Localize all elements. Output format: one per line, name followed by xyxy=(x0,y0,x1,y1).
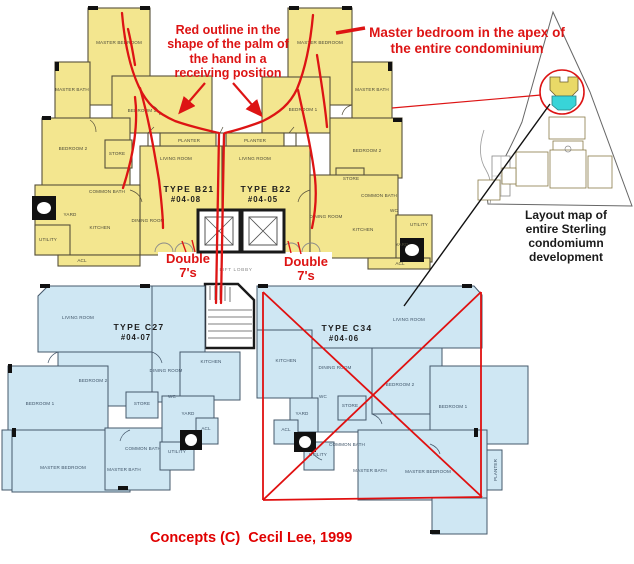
room-label: MASTER BEDROOM xyxy=(405,469,451,474)
map-highlight-building-upper xyxy=(550,77,578,96)
room-label: COMMON BATH xyxy=(329,442,365,447)
room-label: UTILITY xyxy=(39,237,57,242)
unit-type-c27: TYPE C27 xyxy=(114,322,165,332)
map-pointer-red-line xyxy=(392,95,541,108)
palm-annotation-text: Red outline in the shape of the palm of … xyxy=(163,23,293,81)
room-label: BEDROOM 2 xyxy=(353,148,382,153)
room-label: MASTER BATH xyxy=(355,87,389,92)
copyright-text: Concepts (C) Cecil Lee, 1999 xyxy=(150,530,352,546)
room-label: BEDROOM 1 xyxy=(128,108,157,113)
c27-bedroom1-block xyxy=(8,366,108,432)
room-label: DINING ROOM xyxy=(150,368,183,373)
c34-master-extension-block xyxy=(432,498,487,534)
unit-type-c34: TYPE C34 xyxy=(322,323,373,333)
double-sevens-right-label: Double 7's xyxy=(276,255,336,282)
lift-lobby-label: LIFT LOBBY xyxy=(219,267,252,273)
unit-number-b21: #04-08 xyxy=(171,195,201,204)
room-label: MASTER BEDROOM xyxy=(297,40,343,45)
lift-shafts xyxy=(198,210,284,252)
room-label: STORE xyxy=(343,176,359,181)
condominium-floorplan-diagram: MASTER BEDROOM MASTER BATH BEDROOM 1 BED… xyxy=(0,0,634,564)
room-label: KITCHEN xyxy=(352,227,373,232)
layout-map-caption: Layout map of entire Sterling condomiumn… xyxy=(520,208,612,265)
wc-fixtures-lower xyxy=(180,430,316,452)
room-label: MASTER BATH xyxy=(353,468,387,473)
room-label: BEDROOM 2 xyxy=(79,378,108,383)
room-label: YARD xyxy=(296,411,309,416)
room-label: PLANTER xyxy=(493,458,498,481)
room-label: COMMON BATH xyxy=(125,446,161,451)
apex-annotation-text: Master bedroom in the apex of the entire… xyxy=(368,25,566,56)
c27-living-block xyxy=(38,286,152,352)
room-label: BEDROOM 1 xyxy=(439,404,468,409)
room-label: STORE xyxy=(342,403,358,408)
room-label: MASTER BATH xyxy=(107,467,141,472)
b21-acl-block xyxy=(58,255,140,266)
unit-type-b21: TYPE B21 xyxy=(164,184,215,194)
room-label: UTILITY xyxy=(168,449,186,454)
room-label: STORE xyxy=(109,151,125,156)
room-label: BEDROOM 2 xyxy=(386,382,415,387)
c34-kitchen-block xyxy=(257,330,312,398)
room-label: MASTER BATH xyxy=(55,87,89,92)
room-label: YARD xyxy=(182,411,195,416)
room-label: LIVING ROOM xyxy=(62,315,94,320)
room-label: LIVING ROOM xyxy=(160,156,192,161)
room-label: KITCHEN xyxy=(89,225,110,230)
room-label: COMMON BATH xyxy=(89,189,125,194)
double-sevens-left-label: Double 7's xyxy=(158,252,218,279)
unit-number-c27: #04-07 xyxy=(121,333,151,342)
room-label: BEDROOM 1 xyxy=(26,401,55,406)
room-label: ACL xyxy=(77,258,87,263)
room-label: ACL xyxy=(395,261,405,266)
room-label: PLANTER xyxy=(244,138,267,143)
unit-type-b22: TYPE B22 xyxy=(241,184,292,194)
room-label: PLANTER xyxy=(178,138,201,143)
room-label: ACL xyxy=(201,426,211,431)
c27-planter-strip xyxy=(2,430,12,490)
unit-number-c34: #04-06 xyxy=(329,334,359,343)
room-label: MASTER BEDROOM xyxy=(96,40,142,45)
unit-number-b22: #04-05 xyxy=(248,195,278,204)
room-label: COMMON BATH xyxy=(361,193,397,198)
map-highlight-building-lower xyxy=(552,96,576,110)
room-label: DINING ROOM xyxy=(132,218,165,223)
room-label: ACL xyxy=(281,427,291,432)
c34-store-block xyxy=(338,396,366,420)
room-label: WC xyxy=(319,394,327,399)
planter-endbox xyxy=(284,133,296,146)
b22-bedroom1-block xyxy=(262,77,330,133)
room-label: KITCHEN xyxy=(275,358,296,363)
room-label: STORE xyxy=(134,401,150,406)
room-label: KITCHEN xyxy=(200,359,221,364)
room-label: YARD xyxy=(64,212,77,217)
room-label: LIVING ROOM xyxy=(393,317,425,322)
room-label: BEDROOM 2 xyxy=(59,146,88,151)
room-label: YARD xyxy=(396,242,409,247)
room-label: WC xyxy=(390,208,398,213)
room-label: LIVING ROOM xyxy=(239,156,271,161)
room-label: UTILITY xyxy=(410,222,428,227)
room-label: MASTER BEDROOM xyxy=(40,465,86,470)
room-label: WC xyxy=(168,394,176,399)
